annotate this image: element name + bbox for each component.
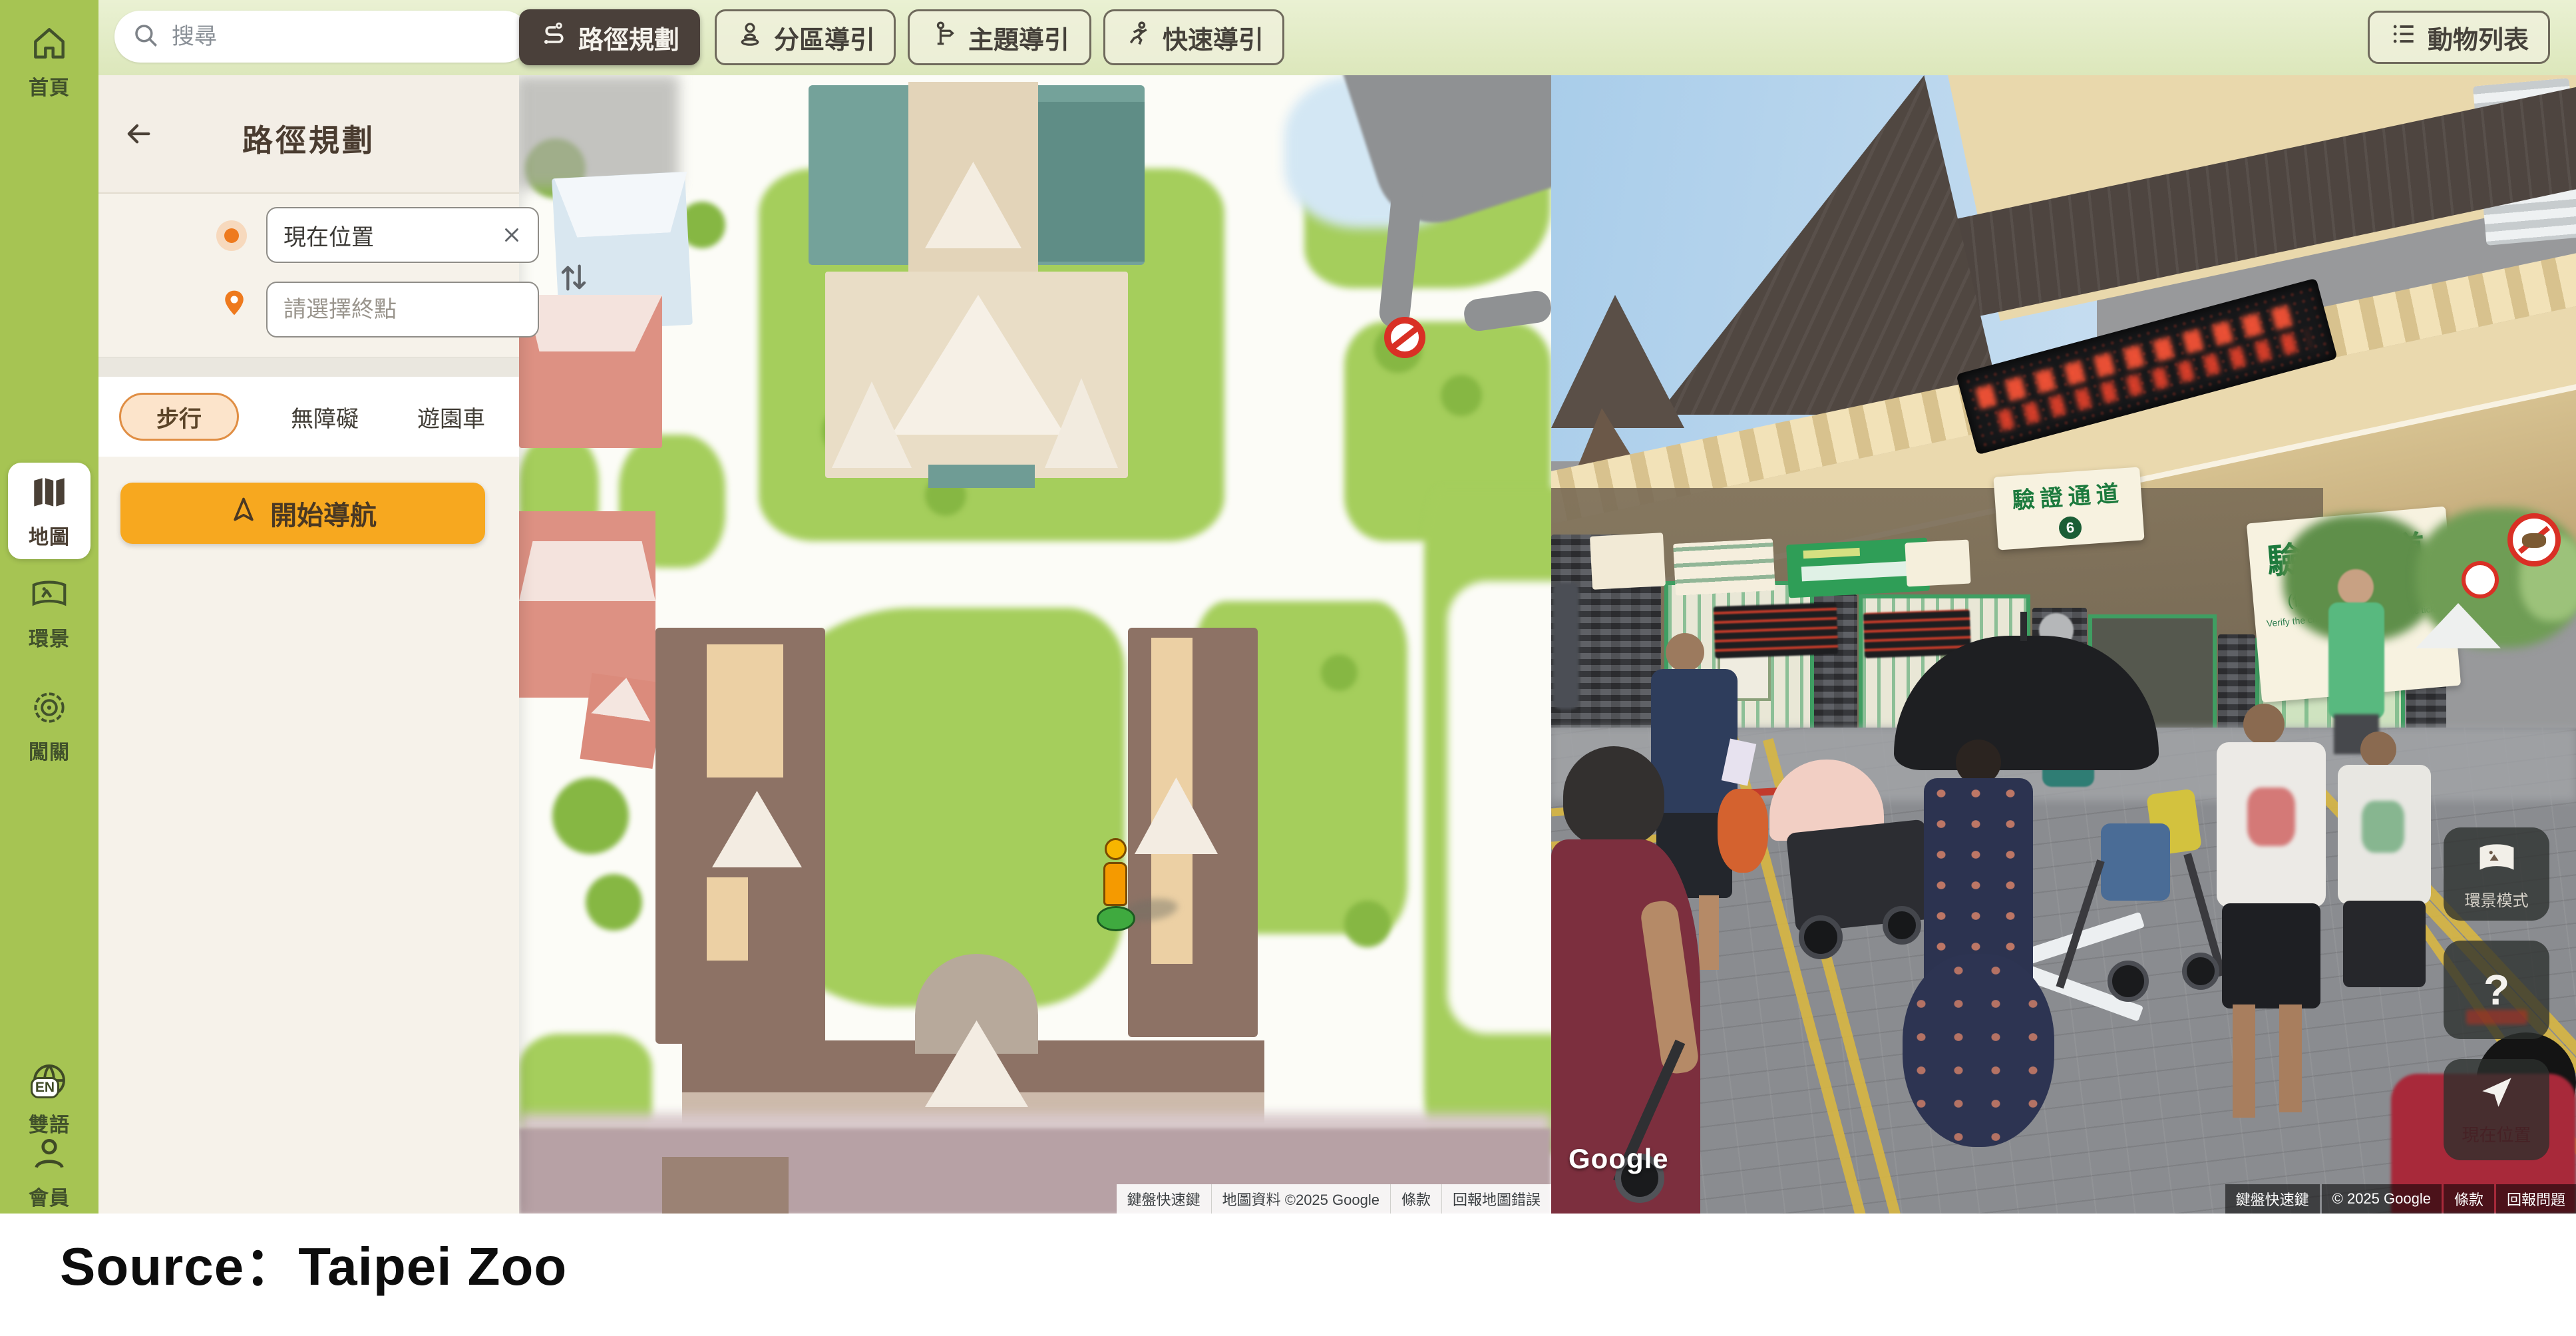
- topbar: 路徑規劃 分區導引 主題導引 快速導引 動物列表: [98, 0, 2576, 75]
- google-logo: Google: [1568, 1143, 1669, 1175]
- report-problem-link[interactable]: 回報問題: [2496, 1184, 2576, 1214]
- locate-arrow-icon: [2478, 1073, 2516, 1115]
- swap-endpoints-icon[interactable]: [556, 260, 591, 295]
- streetview-attribution: 鍵盤快速鍵 © 2025 Google 條款 回報問題: [2225, 1184, 2576, 1214]
- badge-icon: [29, 687, 70, 732]
- search-box[interactable]: [114, 11, 530, 63]
- destination-input[interactable]: [282, 296, 523, 324]
- tab-route-planning[interactable]: 路徑規劃: [519, 9, 700, 65]
- locate-label: 現在位置: [2462, 1122, 2531, 1146]
- panorama-mode-button[interactable]: 環景模式: [2444, 827, 2549, 921]
- sidebar-item-label: 地圖: [29, 521, 70, 550]
- sidebar-item-panorama[interactable]: 環景: [0, 574, 98, 652]
- route-panel-header: 路徑規劃: [98, 75, 519, 194]
- help-button[interactable]: ?: [2444, 941, 2549, 1039]
- keyboard-shortcuts-link[interactable]: 鍵盤快速鍵: [2225, 1184, 2320, 1214]
- origin-field[interactable]: [266, 207, 539, 263]
- travel-mode-tabs: 步行 無障礙 遊園車: [98, 377, 519, 457]
- streetview-pane[interactable]: 驗證通道 6 驗證通道 (優待票/免票/全票) Verify the chann…: [1551, 75, 2576, 1214]
- terms-link[interactable]: 條款: [1390, 1184, 1441, 1214]
- clear-origin-icon[interactable]: [500, 224, 523, 246]
- copyright-label: © 2025 Google: [2322, 1184, 2442, 1214]
- tab-label: 主題導引: [968, 19, 1069, 56]
- sidebar-item-home[interactable]: 首頁: [0, 23, 98, 101]
- panorama-mode-label: 環景模式: [2465, 887, 2529, 911]
- tab-zone-guide[interactable]: 分區導引: [715, 9, 896, 65]
- navigation-arrow-icon: [229, 495, 258, 531]
- terms-link[interactable]: 條款: [2444, 1184, 2494, 1214]
- mode-label: 步行: [156, 401, 202, 433]
- mode-shuttle[interactable]: 遊園車: [391, 393, 511, 441]
- tab-quick-guide[interactable]: 快速導引: [1103, 9, 1284, 65]
- mode-accessible[interactable]: 無障礙: [265, 393, 385, 441]
- start-navigation-button[interactable]: 開始導航: [120, 483, 485, 544]
- destination-field[interactable]: [266, 282, 539, 337]
- destination-pin-icon: [220, 288, 249, 324]
- sidebar-item-language[interactable]: EN 雙語: [0, 1060, 98, 1138]
- sidebar-item-challenge[interactable]: 闖關: [0, 687, 98, 765]
- animal-list-label: 動物列表: [2428, 19, 2529, 56]
- map-attribution: 鍵盤快速鍵 地圖資料 ©2025 Google 條款 回報地圖錯誤: [1117, 1184, 1551, 1214]
- home-icon: [29, 23, 70, 67]
- signpost-icon: [930, 19, 959, 55]
- tab-theme-guide[interactable]: 主題導引: [908, 9, 1091, 65]
- animal-list-button[interactable]: 動物列表: [2368, 11, 2550, 64]
- sidebar-item-label: 會員: [29, 1182, 70, 1211]
- panel-title: 路徑規劃: [98, 116, 519, 160]
- person-icon: [29, 1133, 70, 1178]
- route-icon: [540, 19, 569, 55]
- origin-dot-icon: [216, 220, 247, 251]
- gate-sign-6: 驗證通道 6: [1993, 467, 2144, 550]
- sidebar-item-map[interactable]: 地圖: [8, 463, 91, 559]
- mode-label: 遊園車: [417, 401, 485, 433]
- search-input[interactable]: [170, 23, 512, 51]
- mode-walk[interactable]: 步行: [119, 393, 239, 441]
- mode-label: 無障礙: [291, 401, 359, 433]
- en-badge: EN: [31, 1077, 59, 1098]
- sidebar-item-label: 環景: [29, 622, 70, 652]
- map-pane[interactable]: 鍵盤快速鍵 地圖資料 ©2025 Google 條款 回報地圖錯誤: [519, 75, 1551, 1214]
- panorama-mode-icon: [2476, 837, 2517, 882]
- help-label: ?: [2484, 969, 2509, 1011]
- tab-label: 分區導引: [774, 19, 875, 56]
- runner-icon: [1124, 19, 1153, 55]
- globe-icon: EN: [29, 1060, 70, 1104]
- tab-label: 路徑規劃: [578, 19, 679, 56]
- tab-label: 快速導引: [1163, 19, 1264, 56]
- locate-button[interactable]: 現在位置: [2444, 1059, 2549, 1160]
- screenshot-root: 首頁 地圖 環景 闖關 EN 雙語 會員: [0, 0, 2576, 1336]
- help-sublabel: [2466, 1010, 2527, 1024]
- sidebar: 首頁 地圖 環景 闖關 EN 雙語 會員: [0, 0, 98, 1214]
- source-caption: Source：Taipei Zoo: [60, 1224, 567, 1301]
- route-panel: 路徑規劃 步行 無障礙 遊園車 開始導航: [98, 75, 519, 1214]
- no-pets-sign: [2507, 513, 2561, 566]
- map-data-label: 地圖資料 ©2025 Google: [1211, 1184, 1390, 1214]
- search-icon: [132, 21, 160, 53]
- sidebar-item-member[interactable]: 會員: [0, 1133, 98, 1211]
- report-map-error-link[interactable]: 回報地圖錯誤: [1441, 1184, 1551, 1214]
- sidebar-item-label: 闖關: [29, 736, 70, 765]
- keyboard-shortcuts-link[interactable]: 鍵盤快速鍵: [1117, 1184, 1211, 1214]
- list-icon: [2389, 19, 2418, 55]
- gate-number: 6: [2058, 516, 2082, 540]
- no-entry-marker[interactable]: [1384, 317, 1425, 358]
- person-pin-icon: [735, 19, 765, 55]
- map-icon: [29, 472, 70, 517]
- start-navigation-label: 開始導航: [270, 494, 377, 533]
- panorama-icon: [29, 574, 70, 618]
- gate-sign-title: 驗證通道: [1994, 473, 2142, 516]
- sidebar-item-label: 首頁: [29, 71, 70, 101]
- zoo-app: 首頁 地圖 環景 闖關 EN 雙語 會員: [0, 0, 2576, 1214]
- origin-input[interactable]: [282, 222, 500, 249]
- panel-divider: [98, 357, 519, 378]
